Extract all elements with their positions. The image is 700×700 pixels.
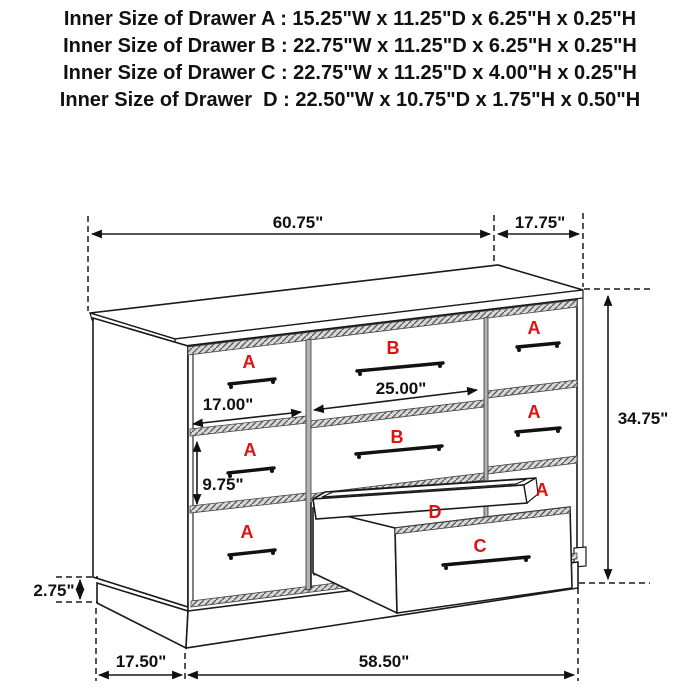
inner-size-line-c: Inner Size of Drawer C : 22.75"W x 11.25… <box>0 60 700 87</box>
dim-drawer-b-width-value: 25.00" <box>376 379 427 398</box>
label-drawer-c: C <box>474 536 487 556</box>
label-tray-d: D <box>429 502 442 522</box>
dim-base-width-value: 58.50" <box>359 652 410 671</box>
inner-size-header: Inner Size of Drawer A : 15.25"W x 11.25… <box>0 6 700 114</box>
label-drawer-b: B <box>387 338 400 358</box>
dim-drawer-a-width-value: 17.00" <box>203 395 254 414</box>
dim-base-depth-value: 17.50" <box>116 652 167 671</box>
label-drawer-a: A <box>244 440 257 460</box>
label-drawer-a: A <box>536 480 549 500</box>
inner-size-line-d: Inner Size of Drawer D : 22.50"W x 10.75… <box>0 87 700 114</box>
dresser-dimension-diagram: Inner Size of Drawer A : 15.25"W x 11.25… <box>0 0 700 700</box>
label-drawer-a: A <box>243 352 256 372</box>
dim-overall-height: 34.75" <box>579 289 668 583</box>
label-drawer-b: B <box>391 427 404 447</box>
dim-base-height-value: 2.75" <box>33 581 74 600</box>
label-drawer-a: A <box>241 522 254 542</box>
dim-base-height: 2.75" <box>33 577 98 602</box>
dim-overall-height-value: 34.75" <box>618 409 669 428</box>
dim-drawer-a-height-value: 9.75" <box>202 475 243 494</box>
inner-size-line-b: Inner Size of Drawer B : 22.75"W x 11.25… <box>0 33 700 60</box>
left-side-panel <box>93 318 188 607</box>
dim-overall-depth-value: 17.75" <box>515 213 566 232</box>
label-drawer-a: A <box>528 318 541 338</box>
label-drawer-a: A <box>528 402 541 422</box>
inner-size-line-a: Inner Size of Drawer A : 15.25"W x 11.25… <box>0 6 700 33</box>
dim-overall-width-value: 60.75" <box>273 213 324 232</box>
